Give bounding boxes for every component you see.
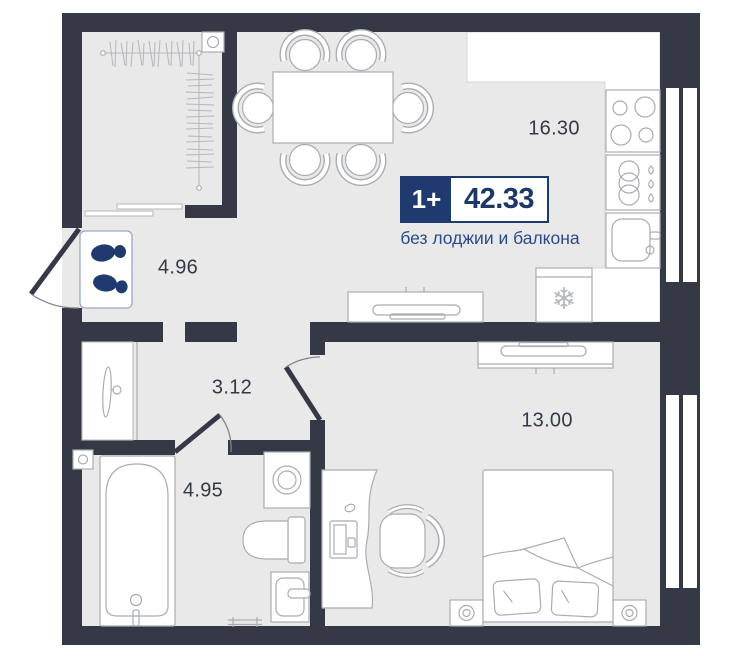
stove [606, 90, 660, 152]
pillow [493, 578, 541, 615]
floor-plan: ❄ [0, 0, 729, 660]
room-area-bedroom: 13.00 [521, 410, 573, 433]
room-area-bathroom: 4.95 [183, 480, 223, 503]
doormat [80, 231, 132, 308]
badge-rooms-count: 1+ [402, 178, 451, 221]
area-badge: 1+ 42.33 [400, 176, 549, 223]
badge-total-area: 42.33 [451, 178, 547, 221]
monitor [330, 521, 357, 558]
toilet [243, 517, 305, 563]
bathroom-vent-icon [73, 450, 93, 469]
tv-stand-living [348, 287, 483, 322]
snowflake-icon: ❄ [551, 282, 576, 317]
room-area-hallway: 4.96 [158, 257, 198, 280]
bathtub [100, 456, 175, 626]
room-area-corridor: 3.12 [212, 377, 252, 400]
nightstand-right [613, 600, 646, 626]
bed [483, 470, 613, 622]
washing-machine [264, 452, 310, 508]
nightstand-left [450, 600, 483, 626]
floor-plan-drawing: ❄ [0, 0, 729, 660]
wardrobe-vent-icon [202, 32, 224, 52]
badge-note: без лоджии и балкона [355, 228, 625, 249]
room-area-kitchen-living: 16.30 [528, 118, 580, 141]
coat-rack [82, 342, 137, 440]
fridge: ❄ [536, 268, 592, 322]
dish-rack [606, 155, 660, 210]
bathroom-sink [271, 572, 310, 622]
pillow [551, 581, 599, 617]
dining-table [273, 72, 393, 143]
